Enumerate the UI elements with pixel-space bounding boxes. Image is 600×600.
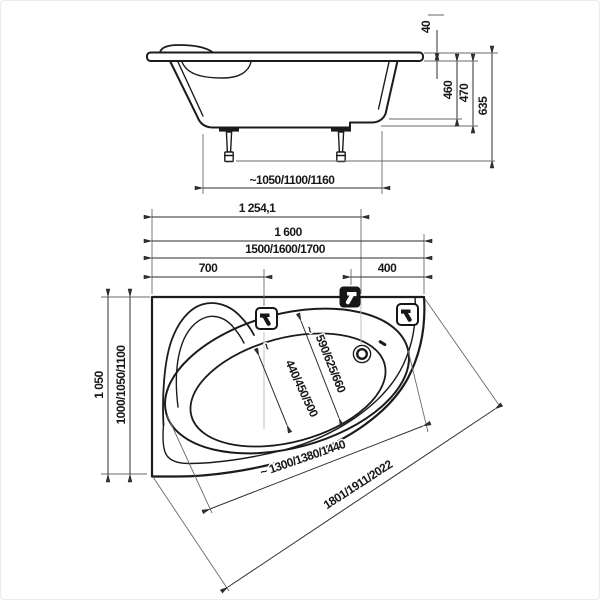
dim-label-faucet-right: 400 — [378, 261, 397, 275]
dim-label-overall-height: 635 — [476, 96, 490, 115]
dim-label-drain-offset: 1 254,1 — [239, 201, 276, 215]
dim-label-front-edge: 1801/1911/2022 — [321, 457, 396, 512]
support-leg-left — [219, 128, 239, 161]
dim-label-feet-spacing: ~1050/1100/1160 — [250, 173, 336, 187]
dim-label-overall-width: 1 050 — [92, 370, 106, 398]
dim-label-depth-inner: 460 — [441, 80, 455, 99]
dim-label-rim-height: 40 — [419, 20, 433, 33]
faucet-position-icon-right — [397, 304, 418, 325]
tub-rim — [147, 53, 423, 62]
support-leg-right — [331, 128, 351, 161]
dim-label-faucet-left: 700 — [199, 261, 218, 275]
plan-view: 1 254,1 1 600 1500/1600/1700 700 400 1 0… — [92, 201, 499, 591]
side-elevation-view: 40 460 470 635 ~1050/1100/1160 — [147, 15, 498, 194]
dim-label-overall-length: 1 600 — [274, 225, 302, 239]
dim-label-width-variants: 1000/1050/1100 — [114, 345, 128, 425]
dim-label-length-variants: 1500/1600/1700 — [245, 242, 326, 256]
headrest-profile — [160, 45, 213, 53]
tub-body-outline — [170, 61, 398, 128]
drawing-canvas: 40 460 470 635 ~1050/1100/1160 — [0, 0, 600, 600]
faucet-position-icon-left — [256, 308, 277, 329]
bathtub-technical-drawing: 40 460 470 635 ~1050/1100/1160 — [1, 1, 600, 600]
dim-label-depth-outer: 470 — [457, 83, 471, 102]
water-supply-position-icon — [340, 287, 361, 308]
